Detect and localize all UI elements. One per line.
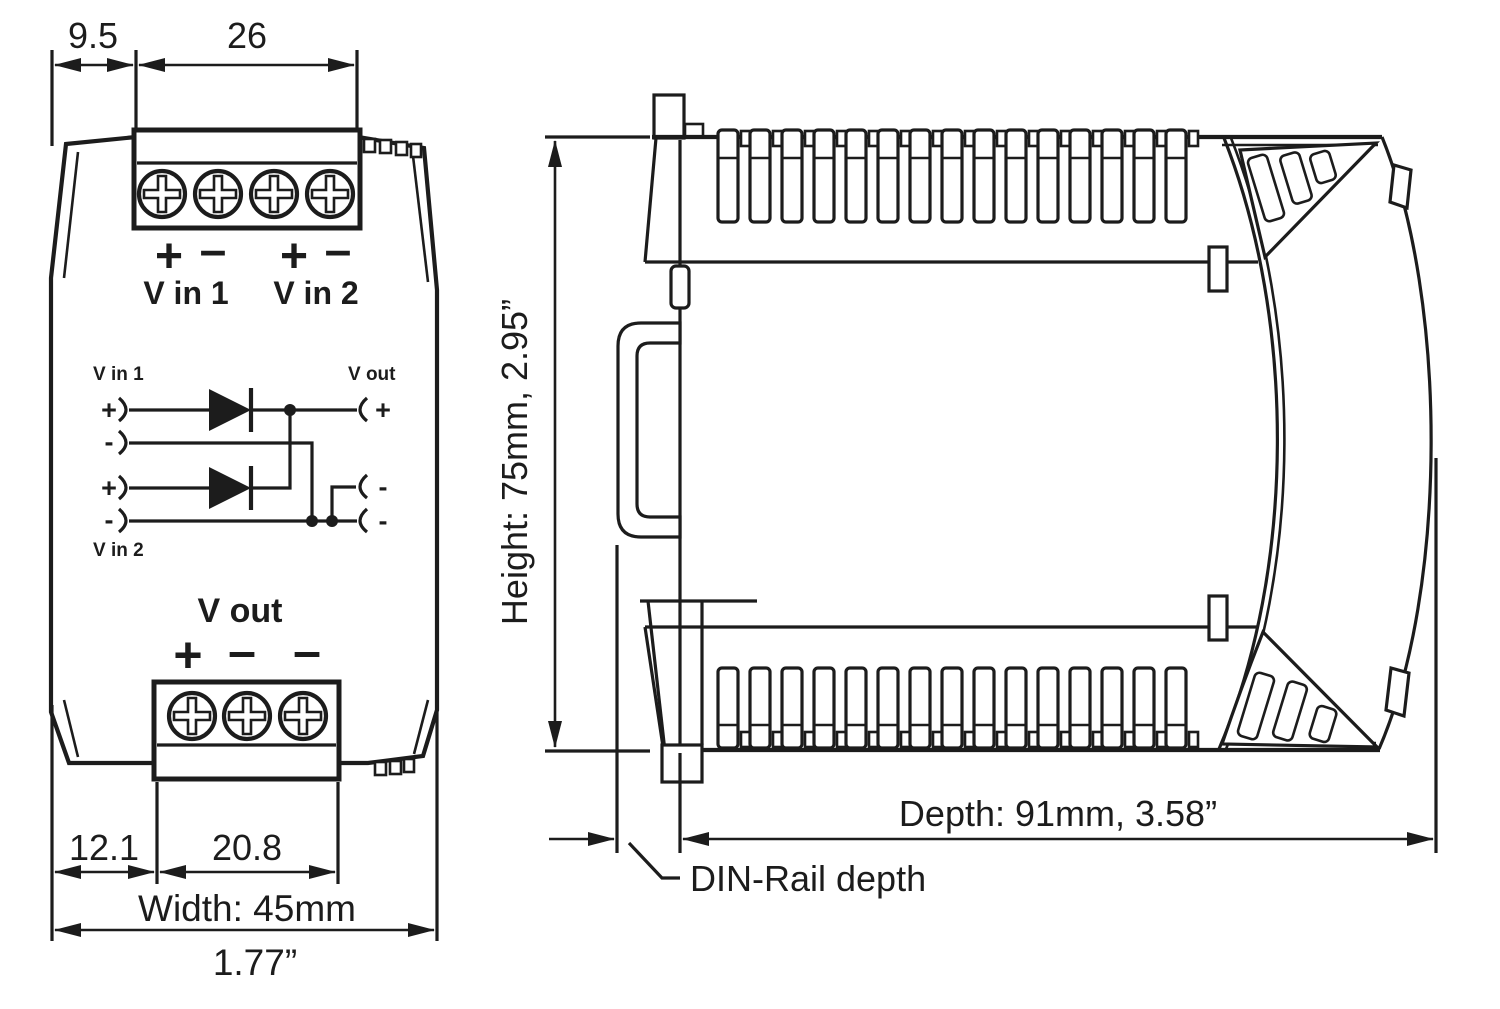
vent-slat — [942, 668, 974, 748]
front-face-clip-top — [1390, 165, 1411, 208]
vent-slat — [1166, 668, 1198, 748]
side-seam-tab-bottom — [1209, 596, 1227, 640]
vout-minus-sign: – — [228, 623, 256, 679]
junction-dot — [326, 515, 338, 527]
circuit-in2-plus: + — [101, 473, 117, 503]
side-view: Height: 75mm, 2.95” Depth: 91mm, 3.58” D… — [494, 95, 1436, 899]
din-rail-depth-callout: DIN-Rail depth — [629, 843, 926, 899]
dim-width-inch: 1.77” — [213, 942, 297, 983]
vent-slat — [1070, 130, 1102, 222]
vent-slat — [1070, 668, 1102, 748]
side-left-edge-upper — [645, 138, 656, 262]
vent-slat — [1038, 130, 1070, 222]
vent-slat — [782, 130, 814, 222]
vent-slat — [718, 668, 750, 748]
vin2-minus-sign: – — [325, 224, 352, 277]
vent-slat — [1102, 130, 1134, 222]
side-vent-slats-bottom — [718, 668, 1198, 748]
vent-slat — [1134, 668, 1166, 748]
dimensional-drawing-page: + – + – V in 1 V in 2 V in 1 V out V in … — [0, 0, 1500, 1004]
dim-depth: Depth: 91mm, 3.58” — [899, 793, 1217, 834]
vent-slat — [846, 668, 878, 748]
circuit-out-minus: - — [379, 472, 388, 502]
circuit-vin1-label: V in 1 — [93, 364, 144, 385]
vent-slat — [1102, 668, 1134, 748]
vent-slat — [1134, 130, 1166, 222]
vent-slat — [1006, 668, 1038, 748]
front-top-dimensions: 9.5 26 — [52, 15, 357, 146]
terminal-screw — [139, 171, 185, 217]
terminal-screw — [307, 171, 353, 217]
vent-slat — [1038, 668, 1070, 748]
circuit-out-minus2: - — [379, 506, 388, 536]
corner-vent-triangle-bottom — [1222, 632, 1377, 747]
vent-slat — [910, 130, 942, 222]
depth-dimension: Depth: 91mm, 3.58” — [549, 458, 1436, 853]
vent-slat — [878, 668, 910, 748]
vent-slat — [1166, 130, 1198, 222]
junction-dot — [306, 515, 318, 527]
din-clip-foot — [662, 745, 702, 782]
junction-dot — [284, 404, 296, 416]
circuit-out-plus: + — [375, 395, 391, 425]
vent-slat — [974, 130, 1006, 222]
circuit-in2-minus: - — [105, 505, 114, 535]
circuit-vout-label: V out — [348, 364, 396, 385]
vout-plus-sign: + — [173, 627, 202, 683]
vent-slat — [974, 668, 1006, 748]
vent-slat — [814, 130, 846, 222]
dim-offset-top: 9.5 — [68, 15, 118, 56]
terminal-screw — [169, 693, 215, 739]
front-face-curve-outer — [1379, 137, 1431, 749]
dim-terminal-top-width: 26 — [227, 15, 267, 56]
vout-minus2-sign: – — [293, 623, 321, 679]
vin2-label: V in 2 — [273, 275, 358, 311]
vent-slat — [718, 130, 750, 222]
input-terminal-block — [134, 130, 360, 228]
front-view: + – + – V in 1 V in 2 V in 1 V out V in … — [51, 15, 437, 983]
output-terminal-block — [154, 682, 339, 779]
side-vent-slats-top — [718, 130, 1198, 222]
dim-height: Height: 75mm, 2.95” — [494, 299, 535, 625]
vent-slat — [814, 668, 846, 748]
circuit-in1-minus: - — [105, 427, 114, 457]
technical-drawing: + – + – V in 1 V in 2 V in 1 V out V in … — [0, 0, 1500, 1004]
vent-slat — [846, 130, 878, 222]
circuit-in1-plus: + — [101, 395, 117, 425]
vent-slat — [1006, 130, 1038, 222]
terminal-screw — [280, 693, 326, 739]
din-rail-depth-label: DIN-Rail depth — [690, 858, 926, 899]
dim-terminal-bottom-width: 20.8 — [212, 827, 282, 868]
dim-offset-bottom: 12.1 — [69, 827, 139, 868]
vin1-minus-sign: – — [200, 224, 227, 277]
vent-slat — [910, 668, 942, 748]
front-vent-teeth-bottom — [375, 759, 414, 775]
terminal-screw — [251, 171, 297, 217]
vent-slat — [750, 668, 782, 748]
corner-vent-triangle-top — [1240, 143, 1376, 257]
din-clip-hook — [671, 266, 689, 308]
terminal-screw — [224, 693, 270, 739]
din-rail-profile — [618, 323, 680, 537]
vin1-label: V in 1 — [143, 275, 228, 311]
vent-slat — [878, 130, 910, 222]
vent-slat — [750, 130, 782, 222]
front-face-clip-bottom — [1386, 668, 1409, 716]
side-top-tab — [654, 95, 684, 138]
vent-slat — [782, 668, 814, 748]
side-seam-tab-top — [1209, 247, 1227, 291]
terminal-screw — [195, 171, 241, 217]
dim-width-mm: Width: 45mm — [138, 888, 356, 929]
circuit-vin2-label: V in 2 — [93, 540, 144, 561]
vent-slat — [942, 130, 974, 222]
